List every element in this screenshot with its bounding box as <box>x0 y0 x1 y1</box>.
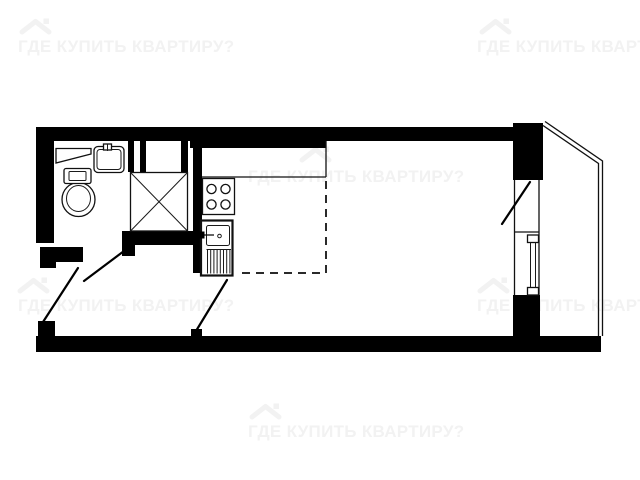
kitchen-zone-boundary <box>238 181 326 273</box>
balcony-window <box>528 235 539 295</box>
house-roof-icon <box>482 19 509 33</box>
watermark-text: ГДЕ КУПИТЬ КВАРТИРУ? <box>248 422 464 441</box>
kitchen-sink <box>200 221 233 276</box>
watermark: ГДЕ КУПИТЬ КВАРТИРУ? <box>477 278 640 316</box>
wall-bathroom-corner <box>40 247 56 268</box>
bathroom-door-swing <box>84 251 124 281</box>
wall-top-kitchen-strip <box>190 141 326 148</box>
washbasin <box>94 144 124 173</box>
watermark-text: ГДЕ КУПИТЬ КВАРТИРУ? <box>18 37 234 56</box>
wall-top <box>36 127 543 141</box>
ventilation-shaft <box>131 173 188 232</box>
floor-plan <box>36 122 603 353</box>
watermark: ГДЕ КУПИТЬ КВАРТИРУ? <box>18 19 234 57</box>
watermark-text: ГДЕ КУПИТЬ КВАРТИРУ? <box>477 37 640 56</box>
house-roof-icon <box>302 147 329 161</box>
watermark: ГДЕ КУПИТЬ КВАРТИРУ? <box>248 404 464 442</box>
kitchen <box>200 141 327 276</box>
faucet <box>200 232 205 239</box>
watermark: ГДЕ КУПИТЬ КВАРТИРУ? <box>477 19 640 57</box>
wall-niche-jamb <box>128 141 134 172</box>
wall-pier-bottom-right <box>513 295 540 336</box>
toilet <box>62 169 95 217</box>
stove <box>203 179 235 215</box>
wall-entrance-jamb <box>38 321 55 338</box>
toilet-tank <box>64 169 91 184</box>
watermark-text: ГДЕ КУПИТЬ КВАРТИРУ? <box>477 296 640 315</box>
wall-pier-top-right <box>513 123 543 180</box>
wall-left <box>36 127 54 243</box>
house-roof-icon <box>480 278 507 292</box>
floor-plan-canvas: ГДЕ КУПИТЬ КВАРТИРУ? ГДЕ КУПИТЬ КВАРТИРУ… <box>0 0 640 480</box>
wall-bottom <box>36 336 601 352</box>
bathroom <box>56 144 124 217</box>
house-roof-icon <box>252 404 279 418</box>
bathroom-shelf <box>56 149 91 164</box>
balcony-wall-column <box>502 180 539 295</box>
house-roof-icon <box>22 19 49 33</box>
house-roof-icon <box>20 278 47 292</box>
wall-shaft-bottom <box>129 231 193 245</box>
watermark-layer: ГДЕ КУПИТЬ КВАРТИРУ? ГДЕ КУПИТЬ КВАРТИРУ… <box>18 19 640 442</box>
wall-niche-jamb <box>140 141 146 172</box>
balcony-door-swing <box>502 182 530 224</box>
wall-niche-jamb <box>181 141 188 172</box>
floor-plan-page: ГДЕ КУПИТЬ КВАРТИРУ? ГДЕ КУПИТЬ КВАРТИРУ… <box>0 0 640 480</box>
watermark: ГДЕ КУПИТЬ КВАРТИРУ? <box>248 147 464 187</box>
